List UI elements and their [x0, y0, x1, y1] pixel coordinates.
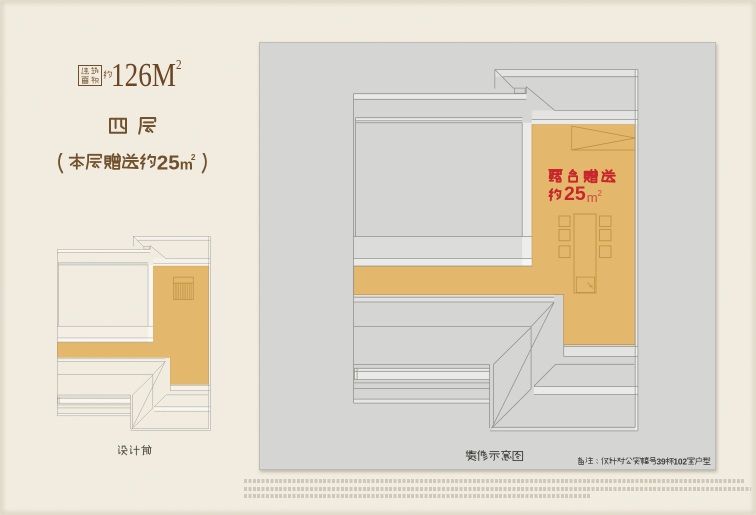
svg-text:2: 2 — [682, 457, 687, 467]
svg-text:2: 2 — [157, 153, 169, 175]
svg-text:9: 9 — [661, 457, 666, 467]
svg-text:2: 2 — [191, 153, 196, 162]
svg-text:5: 5 — [168, 153, 180, 175]
